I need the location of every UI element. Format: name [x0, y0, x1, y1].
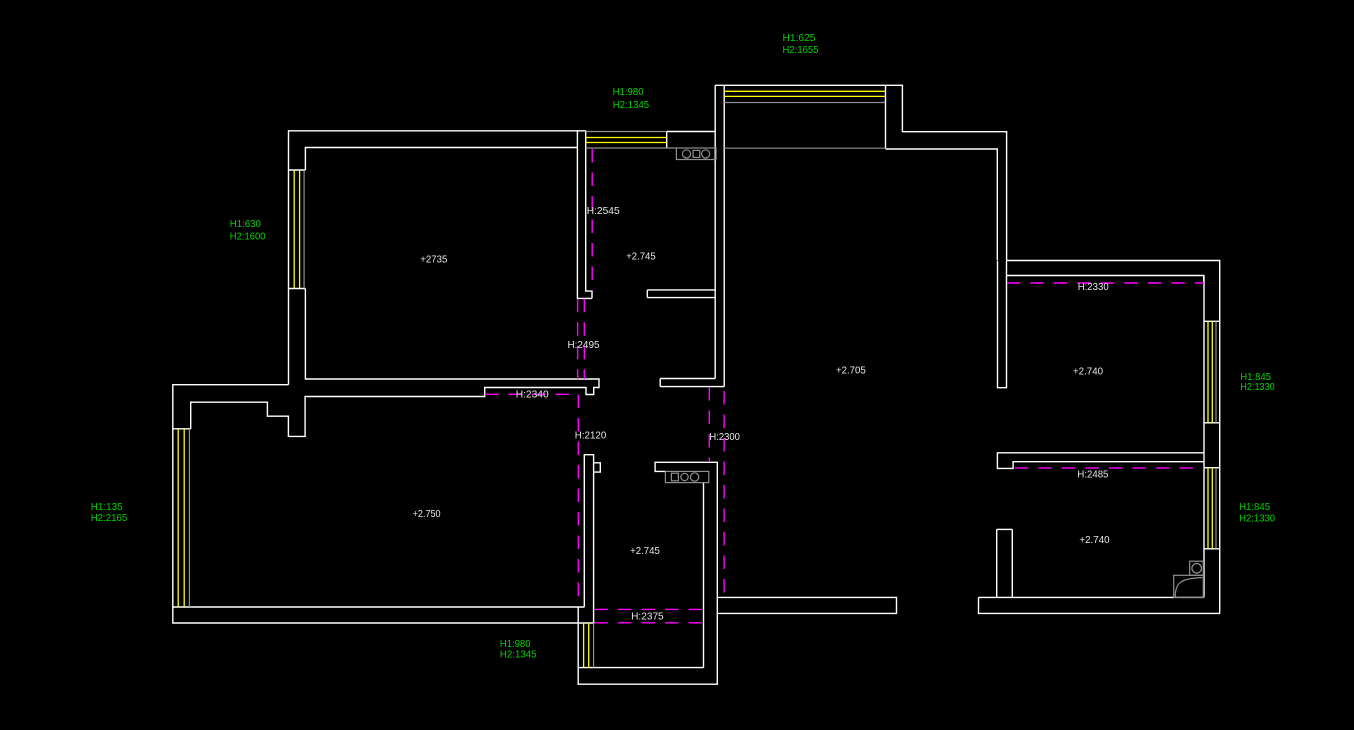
svg-text:H:2495: H:2495 [568, 340, 600, 351]
svg-text:H1:980: H1:980 [613, 87, 644, 98]
svg-text:H:2545: H:2545 [587, 206, 620, 217]
svg-text:H1:845: H1:845 [1239, 502, 1270, 513]
svg-text:+2.750: +2.750 [413, 509, 441, 520]
svg-text:+2.705: +2.705 [836, 366, 866, 377]
svg-text:+2735: +2735 [420, 254, 447, 265]
svg-text:H2:1330: H2:1330 [1240, 382, 1275, 393]
svg-text:+2.740: +2.740 [1073, 366, 1103, 377]
svg-text:+2.745: +2.745 [626, 252, 656, 263]
svg-text:H:2120: H:2120 [575, 431, 607, 442]
svg-text:+2.745: +2.745 [630, 546, 660, 557]
svg-text:H2:2165: H2:2165 [91, 513, 128, 524]
svg-text:H2:1600: H2:1600 [230, 232, 266, 243]
svg-text:H1:625: H1:625 [783, 33, 816, 44]
svg-text:H1:135: H1:135 [91, 502, 123, 513]
svg-text:H2:1655: H2:1655 [783, 45, 819, 56]
svg-text:+2.740: +2.740 [1079, 535, 1109, 546]
svg-text:H2:1345: H2:1345 [500, 649, 537, 660]
svg-text:H1:630: H1:630 [230, 219, 261, 230]
svg-text:H:2340: H:2340 [516, 389, 549, 400]
svg-text:H:2330: H:2330 [1078, 282, 1109, 293]
svg-text:H2:1345: H2:1345 [613, 100, 650, 111]
svg-text:H:2375: H:2375 [631, 612, 664, 623]
svg-text:H2:1330: H2:1330 [1239, 514, 1275, 525]
svg-text:H:2485: H:2485 [1077, 470, 1108, 481]
svg-text:H:2300: H:2300 [709, 432, 740, 443]
